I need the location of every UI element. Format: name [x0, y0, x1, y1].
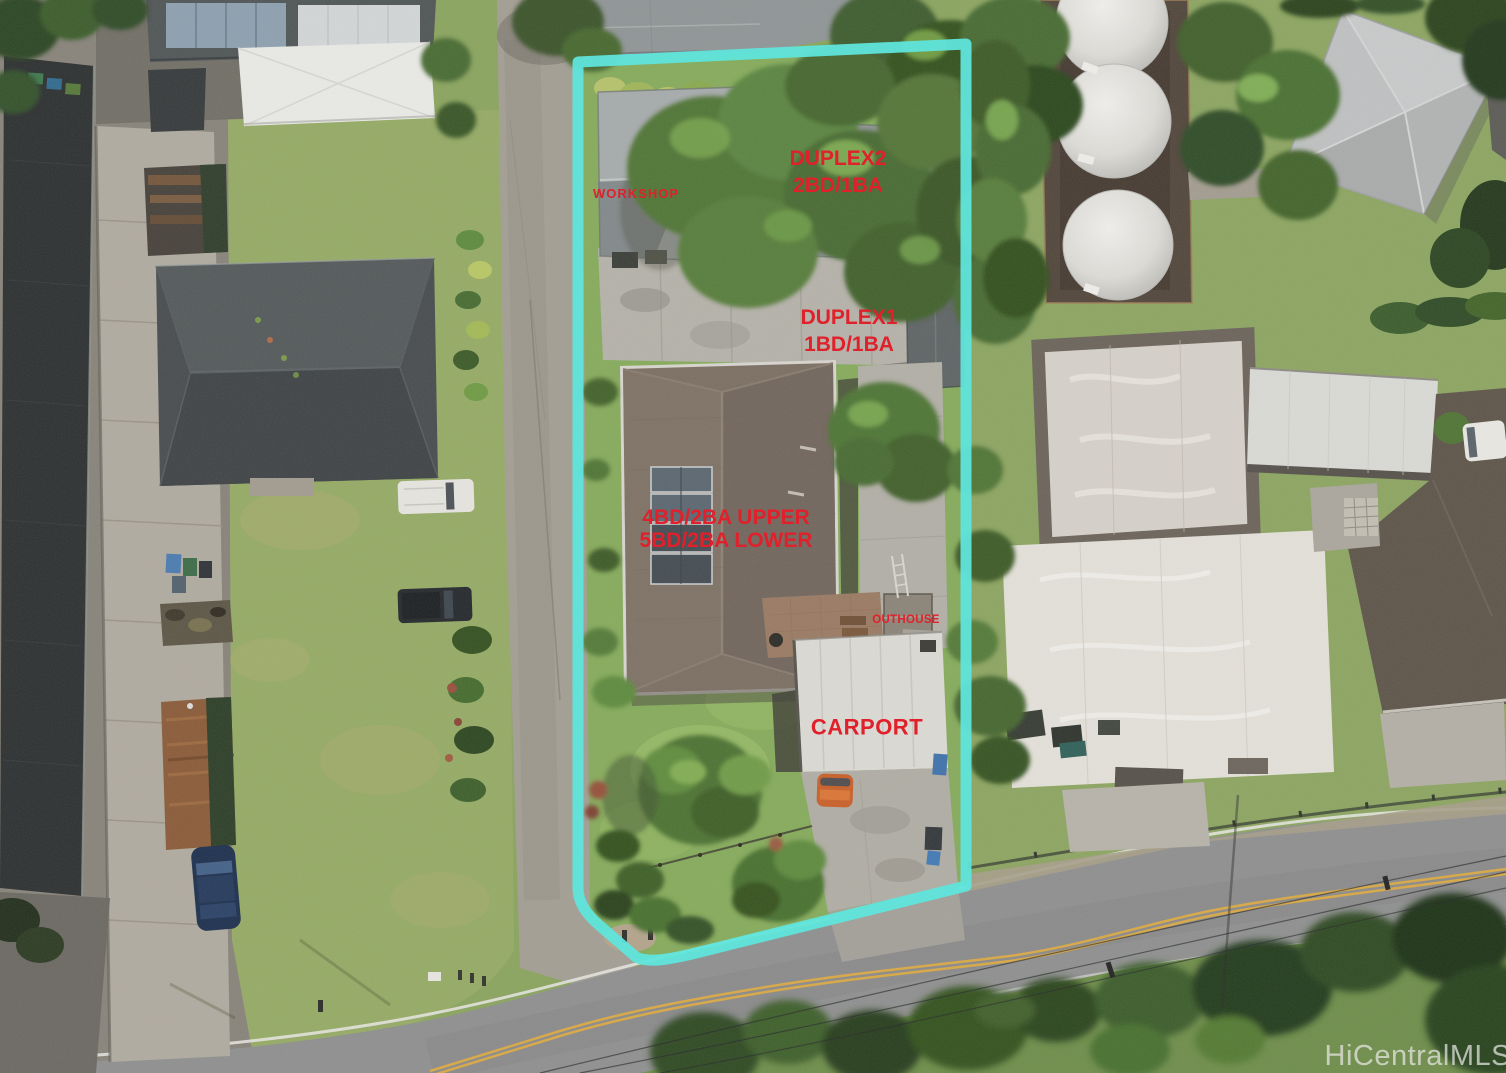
label-carport: CARPORT: [811, 713, 923, 741]
label-workshop: WORKSHOP: [593, 186, 679, 202]
watermark-hicentralmls: HiCentralMLS: [1325, 1040, 1506, 1073]
label-main-house-lower: 5BD/2BA LOWER: [639, 529, 812, 552]
label-main-house: 4BD/2BA UPPER 5BD/2BA LOWER: [639, 506, 812, 552]
label-duplex1-bedbath: 1BD/1BA: [801, 331, 898, 358]
label-main-house-upper: 4BD/2BA UPPER: [639, 506, 812, 529]
label-duplex2: DUPLEX2 2BD/1BA: [790, 145, 887, 199]
label-duplex2-bedbath: 2BD/1BA: [790, 172, 887, 199]
label-duplex2-name: DUPLEX2: [790, 145, 887, 172]
aerial-property-photo: WORKSHOP DUPLEX2 2BD/1BA DUPLEX1 1BD/1BA…: [0, 0, 1506, 1073]
label-duplex1-name: DUPLEX1: [801, 304, 898, 331]
label-duplex1: DUPLEX1 1BD/1BA: [801, 304, 898, 358]
label-outhouse: OUTHOUSE: [872, 613, 940, 627]
